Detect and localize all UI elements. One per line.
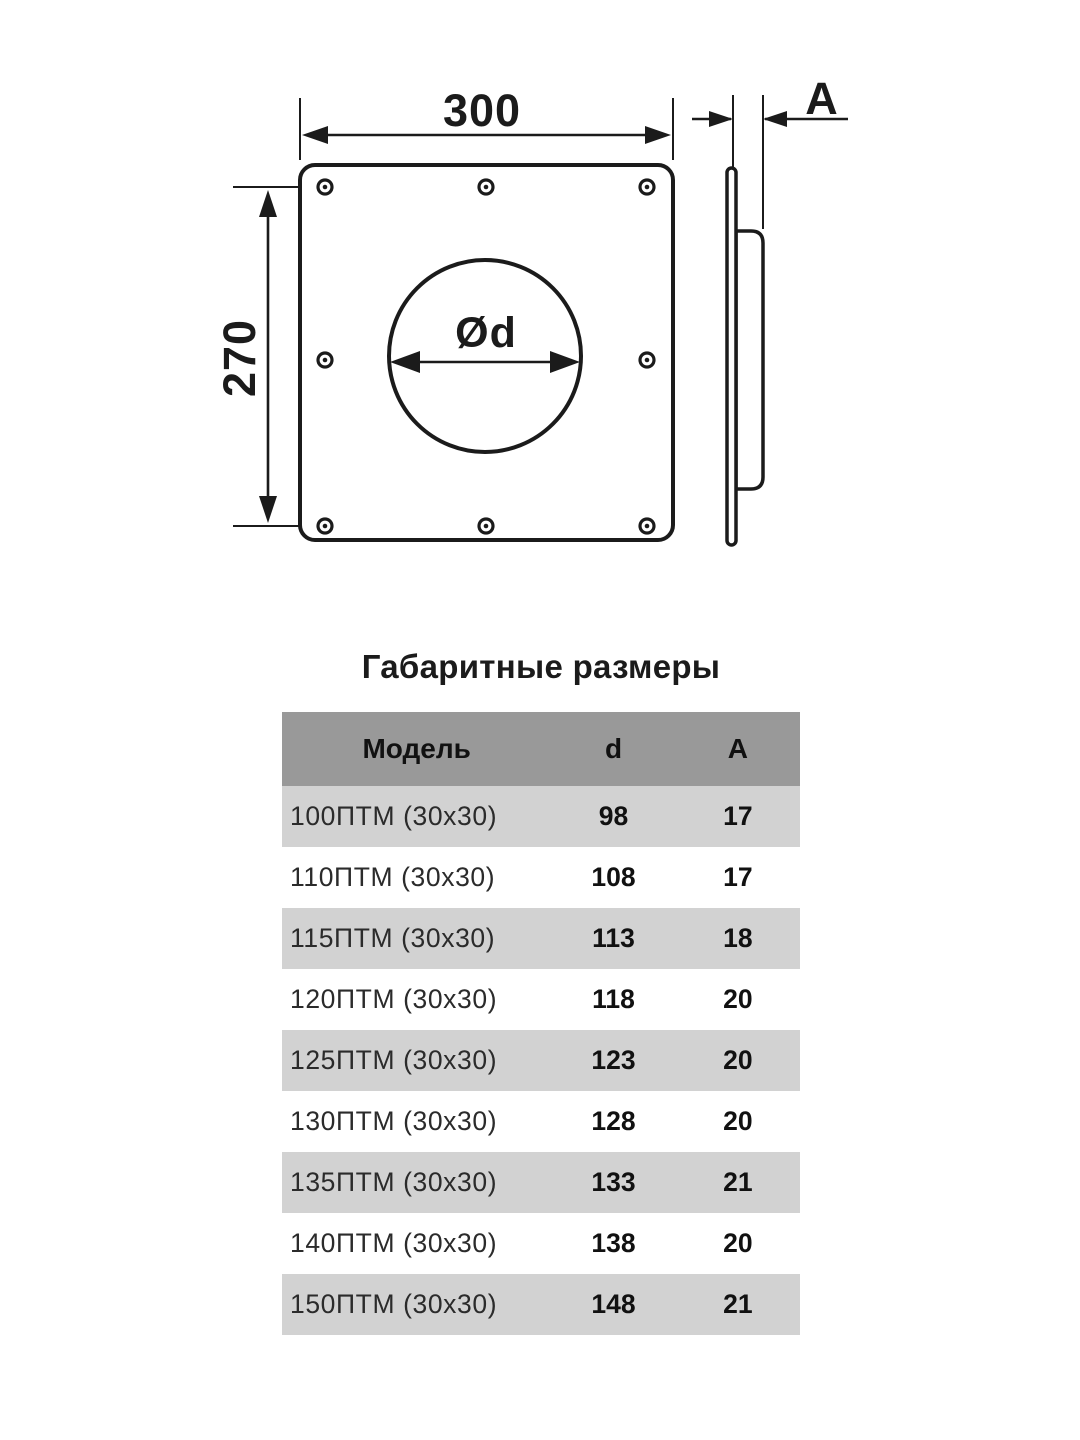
- hole-center-dot: [645, 524, 650, 529]
- d-cell: 138: [551, 1213, 675, 1274]
- d-cell: 128: [551, 1091, 675, 1152]
- table-row: 120ПТМ (30х30)11820: [282, 969, 800, 1030]
- width-arrow-right-icon: [645, 126, 671, 144]
- table-header: Модель d A: [282, 712, 800, 786]
- a-cell: 20: [676, 1213, 800, 1274]
- a-cell: 17: [676, 786, 800, 847]
- d-cell: 108: [551, 847, 675, 908]
- header-row: Модель d A: [282, 712, 800, 786]
- hole-center-dot: [645, 358, 650, 363]
- front-view: 300 270 Ød: [214, 85, 673, 540]
- header-a: A: [676, 712, 800, 786]
- hole-center-dot: [645, 185, 650, 190]
- model-cell: 115ПТМ (30х30): [282, 908, 551, 969]
- height-dimension-label: 270: [214, 319, 265, 397]
- table-title: Габаритные размеры: [282, 648, 800, 686]
- diameter-label: Ød: [455, 309, 517, 357]
- spigot-profile: [736, 231, 763, 489]
- dimensions-table-body: 100ПТМ (30х30)9817110ПТМ (30х30)10817115…: [282, 786, 800, 1335]
- d-cell: 118: [551, 969, 675, 1030]
- a-cell: 20: [676, 969, 800, 1030]
- d-cell: 133: [551, 1152, 675, 1213]
- table-row: 125ПТМ (30х30)12320: [282, 1030, 800, 1091]
- plate-profile: [727, 168, 736, 545]
- model-cell: 135ПТМ (30х30): [282, 1152, 551, 1213]
- depth-arrow-right-icon: [709, 111, 733, 127]
- a-cell: 20: [676, 1091, 800, 1152]
- table-row: 115ПТМ (30х30)11318: [282, 908, 800, 969]
- d-cell: 113: [551, 908, 675, 969]
- model-cell: 130ПТМ (30х30): [282, 1091, 551, 1152]
- model-cell: 125ПТМ (30х30): [282, 1030, 551, 1091]
- hole-center-dot: [484, 524, 489, 529]
- a-cell: 21: [676, 1274, 800, 1335]
- a-cell: 18: [676, 908, 800, 969]
- a-cell: 20: [676, 1030, 800, 1091]
- table-row: 130ПТМ (30х30)12820: [282, 1091, 800, 1152]
- depth-dimension-label: A: [805, 73, 839, 124]
- table-row: 140ПТМ (30х30)13820: [282, 1213, 800, 1274]
- side-view: A: [692, 73, 848, 545]
- width-arrow-left-icon: [302, 126, 328, 144]
- hole-center-dot: [323, 185, 328, 190]
- a-cell: 21: [676, 1152, 800, 1213]
- d-cell: 148: [551, 1274, 675, 1335]
- height-arrow-up-icon: [259, 190, 277, 217]
- hole-center-dot: [484, 185, 489, 190]
- depth-arrow-left-icon: [763, 111, 787, 127]
- a-cell: 17: [676, 847, 800, 908]
- model-cell: 140ПТМ (30х30): [282, 1213, 551, 1274]
- dimensions-table: Модель d A 100ПТМ (30х30)9817110ПТМ (30х…: [282, 712, 800, 1335]
- header-model: Модель: [282, 712, 551, 786]
- table-row: 100ПТМ (30х30)9817: [282, 786, 800, 847]
- table-row: 135ПТМ (30х30)13321: [282, 1152, 800, 1213]
- header-d: d: [551, 712, 675, 786]
- model-cell: 100ПТМ (30х30): [282, 786, 551, 847]
- height-arrow-down-icon: [259, 496, 277, 523]
- table-row: 150ПТМ (30х30)14821: [282, 1274, 800, 1335]
- d-cell: 123: [551, 1030, 675, 1091]
- hole-center-dot: [323, 358, 328, 363]
- model-cell: 120ПТМ (30х30): [282, 969, 551, 1030]
- model-cell: 150ПТМ (30х30): [282, 1274, 551, 1335]
- hole-center-dot: [323, 524, 328, 529]
- model-cell: 110ПТМ (30х30): [282, 847, 551, 908]
- table-row: 110ПТМ (30х30)10817: [282, 847, 800, 908]
- width-dimension-label: 300: [443, 85, 521, 136]
- d-cell: 98: [551, 786, 675, 847]
- technical-drawing: 300 270 Ød A: [0, 0, 1080, 620]
